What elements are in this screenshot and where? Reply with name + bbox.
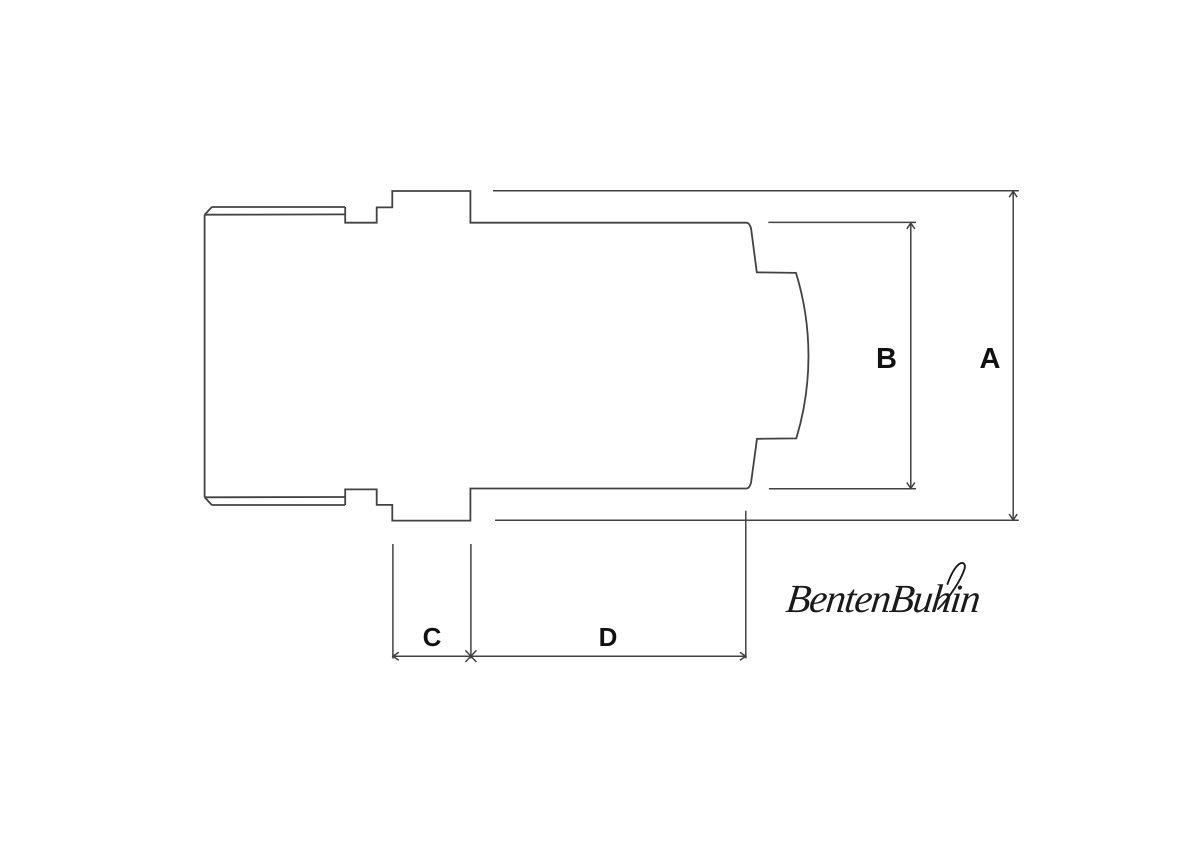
svg-text:A: A [980,343,1001,375]
svg-text:B: B [876,343,897,375]
svg-text:C: C [423,622,442,652]
svg-text:D: D [599,622,618,652]
svg-text:BentenBuhin: BentenBuhin [784,576,984,621]
